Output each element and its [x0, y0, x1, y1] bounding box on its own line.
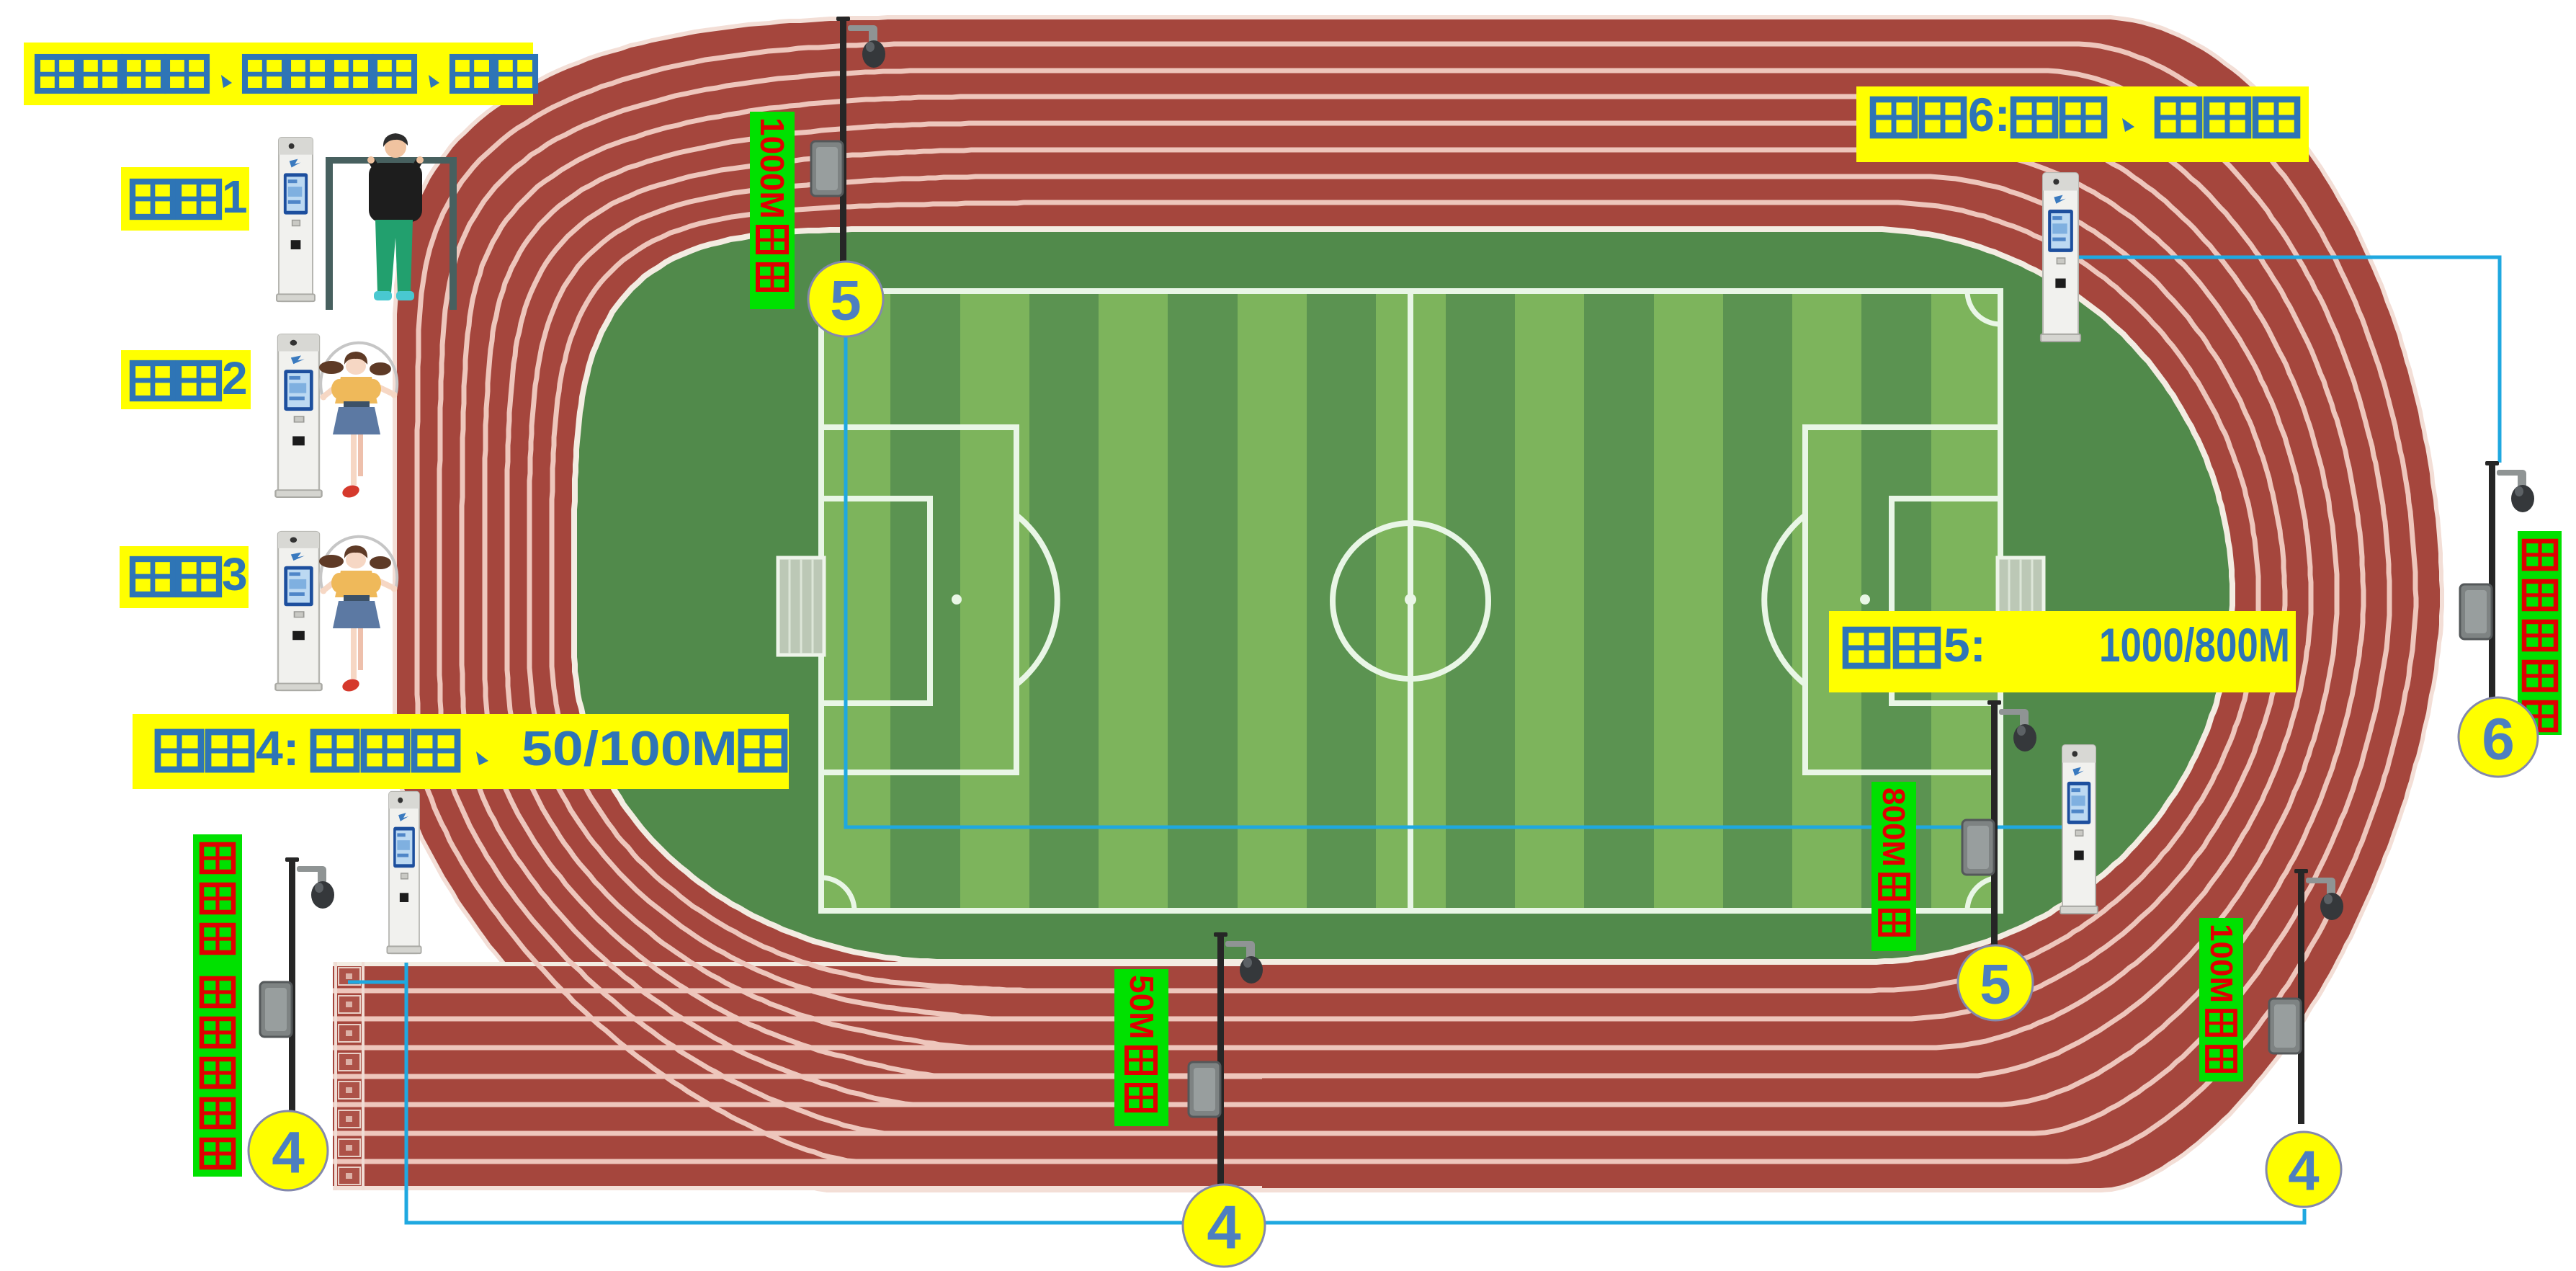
svg-text:4: 4	[2288, 1139, 2319, 1203]
svg-text:2: 2	[222, 352, 248, 404]
svg-text:4:: 4:	[256, 721, 299, 776]
svg-text:800M: 800M	[1876, 788, 1911, 867]
svg-text:3: 3	[222, 548, 248, 600]
svg-text:50/100M: 50/100M	[522, 721, 738, 776]
svg-text:1000/800M: 1000/800M	[2099, 618, 2290, 672]
svg-text:5:: 5:	[1944, 618, 1986, 672]
svg-text:1000M: 1000M	[753, 117, 791, 219]
svg-text:5: 5	[1980, 953, 2011, 1016]
svg-text:6: 6	[2482, 706, 2515, 772]
svg-text:100M: 100M	[2204, 924, 2239, 1003]
svg-text:50M: 50M	[1123, 975, 1160, 1039]
svg-text:4: 4	[1207, 1193, 1240, 1262]
svg-text:4: 4	[272, 1120, 305, 1185]
svg-text:5: 5	[830, 269, 861, 332]
svg-text:1: 1	[222, 171, 248, 223]
svg-text:6:: 6:	[1968, 88, 2011, 141]
